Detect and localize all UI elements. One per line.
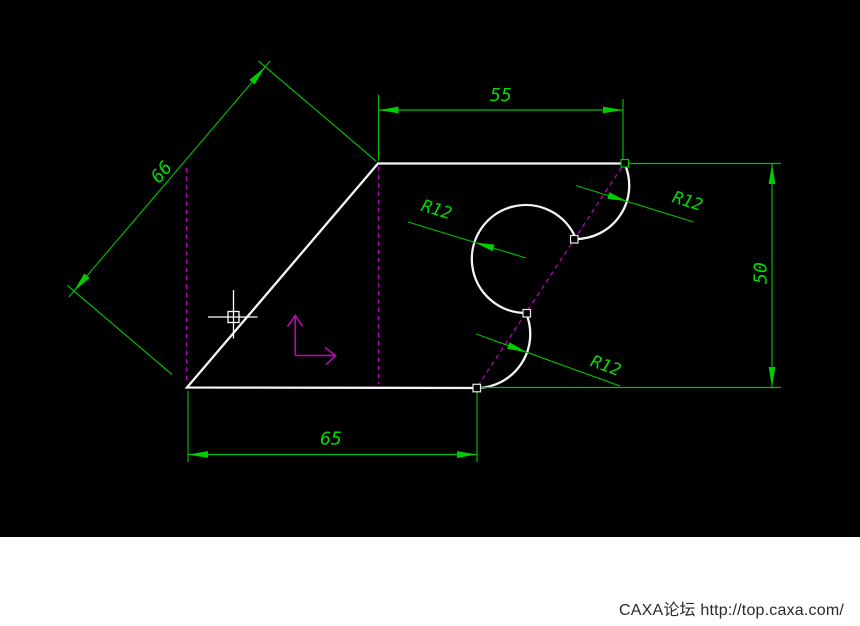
dim-66-arrow-bottom (74, 274, 90, 292)
dim-50-arrow-bottom (769, 367, 776, 387)
dim-66-arrow-top (249, 67, 265, 85)
dim-r12-left-leader (408, 222, 526, 258)
dim-r12-bottom-arrow (507, 342, 527, 352)
endpoint-marker-tangent-upper (571, 236, 579, 244)
dimension-r12-top[interactable]: R12 (576, 186, 705, 223)
dim-65-label[interactable]: 65 (320, 429, 342, 450)
endpoint-marker-bottom-right-vertex (473, 384, 481, 392)
dimension-55[interactable]: 55 (379, 85, 624, 161)
dim-66-extension-bottom (68, 286, 173, 375)
part-outline[interactable] (187, 164, 629, 389)
dim-50-label[interactable]: 50 (751, 262, 772, 284)
coordinate-axis-icon (288, 316, 336, 365)
dimension-r12-left[interactable]: R12 (408, 196, 526, 258)
watermark-text: CAXA论坛 http://top.caxa.com/ (619, 596, 844, 620)
centerline-arc-diagonal[interactable] (479, 168, 622, 386)
dimension-65[interactable]: 65 (188, 391, 477, 462)
snap-marker-top-right-vertex (621, 160, 629, 168)
dim-55-arrow-right (603, 107, 623, 114)
x-axis-arrow (295, 348, 335, 365)
dim-65-arrow-left (188, 451, 208, 458)
dim-r12-left-arrow (474, 242, 494, 251)
caxa-cad-screenshot: 66 55 50 (0, 0, 860, 626)
dim-r12-top-arrow (607, 192, 627, 201)
dim-66-extension-top (259, 61, 377, 161)
dim-50-arrow-top (769, 164, 776, 184)
y-axis-arrow (288, 316, 303, 356)
dimension-66[interactable]: 66 (68, 61, 377, 375)
footer-strip: CAXA论坛 http://top.caxa.com/ (0, 537, 860, 626)
dim-55-label[interactable]: 55 (490, 85, 512, 106)
endpoint-marker-tangent-lower (523, 310, 531, 318)
dimension-r12-bottom[interactable]: R12 (476, 334, 623, 386)
centerlines[interactable] (187, 167, 622, 386)
dim-r12-top-label[interactable]: R12 (670, 188, 705, 216)
drawing-svg[interactable]: 66 55 50 (0, 0, 860, 537)
drawing-canvas[interactable]: 66 55 50 (0, 0, 860, 537)
dim-55-arrow-left (379, 107, 399, 114)
dim-65-arrow-right (457, 451, 477, 458)
dim-66-label[interactable]: 66 (147, 157, 177, 187)
dim-r12-left-label[interactable]: R12 (419, 196, 454, 224)
